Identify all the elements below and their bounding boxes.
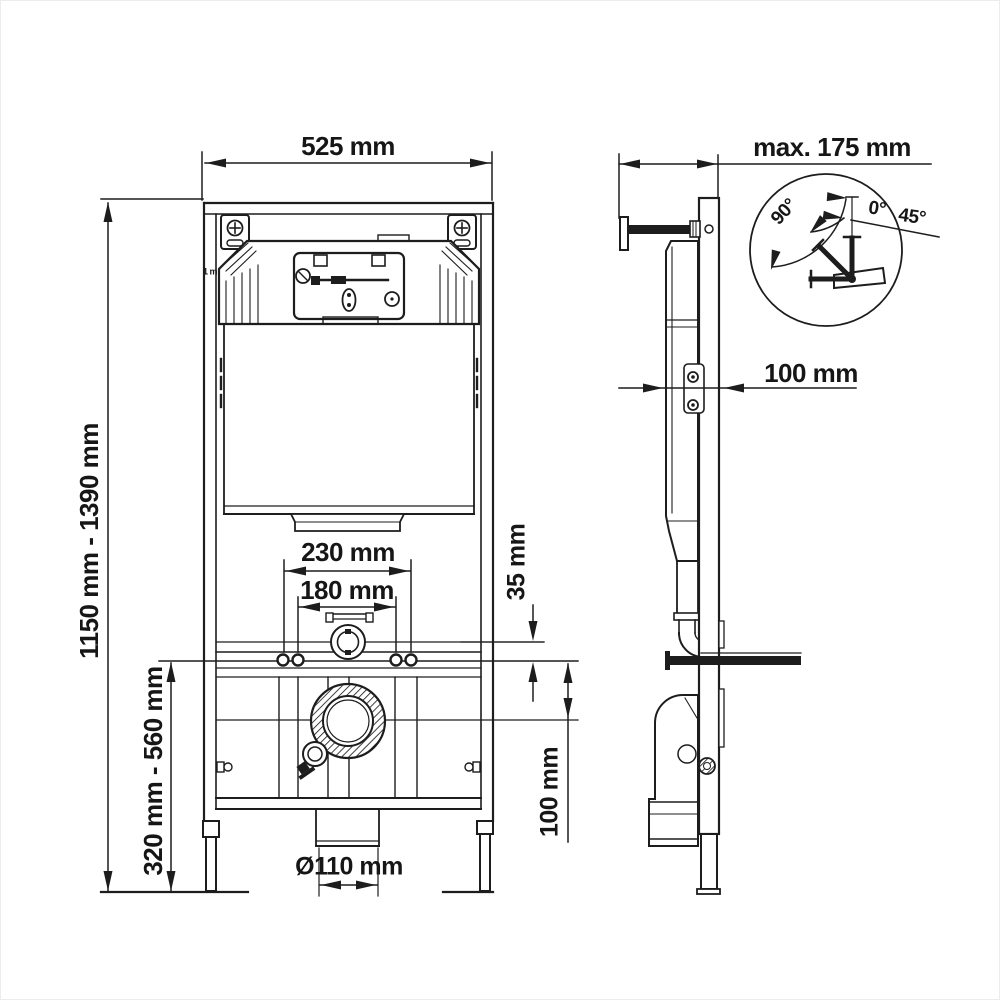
- label-width-525: 525 mm: [301, 133, 395, 159]
- label-depth-175: max. 175 mm: [753, 134, 911, 160]
- outlet-stub: [316, 809, 379, 846]
- waste-outlet: [293, 684, 385, 780]
- installation-drawing: 525 mm max. 175 mm 1150 mm - 1390 mm 320…: [0, 0, 1000, 1000]
- label-wall-100: 100 mm: [764, 360, 858, 386]
- dim-outlet-100: [564, 663, 573, 842]
- rail-plate-upper: [719, 621, 724, 648]
- label-angle-0: 0°: [867, 198, 887, 219]
- rail-plate-lower: [719, 689, 724, 747]
- angle-detail: [750, 174, 939, 326]
- side-cistern: [666, 241, 703, 657]
- label-bolts-230: 230 mm: [301, 539, 395, 565]
- side-rail: [699, 198, 719, 834]
- dim-offset-35: [461, 605, 544, 701]
- access-panel: [294, 253, 404, 324]
- fixing-studs: [665, 651, 801, 670]
- label-offset-35: 35 mm: [505, 524, 530, 601]
- side-waste-elbow: [649, 695, 698, 846]
- label-angle-45: 45°: [897, 206, 927, 229]
- label-outlet-diameter: Ø110 mm: [295, 855, 403, 880]
- label-bolts-180: 180 mm: [300, 577, 394, 603]
- label-outlet-100: 100 mm: [538, 747, 563, 837]
- label-height-1150-1390: 1150 mm - 1390 mm: [76, 423, 102, 659]
- rail-bolt: [699, 758, 715, 774]
- label-height-320-560: 320 mm - 560 mm: [140, 666, 166, 875]
- label-meter-mark: 1 m: [203, 268, 217, 277]
- side-foot: [697, 834, 720, 894]
- cistern-body: [221, 324, 477, 531]
